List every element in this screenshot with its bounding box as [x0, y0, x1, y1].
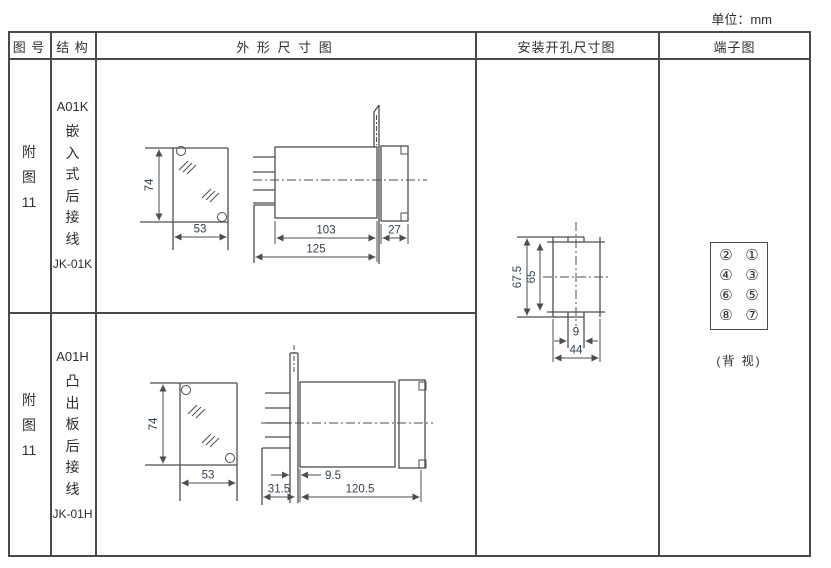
terminal-view-caption: (背 视) — [696, 352, 782, 369]
datasheet-page: { "unit_label": "单位：mm", "headers": { "f… — [0, 0, 831, 568]
terminal-1: ① — [745, 248, 758, 264]
mounting-screw — [182, 386, 191, 395]
model-label: A01K — [57, 99, 89, 114]
dim-total-length-label: 125 — [306, 244, 325, 256]
dim-offset-label: 9.5 — [325, 470, 341, 482]
mounting-cutout-drawing: 67.5 65 9 44 — [475, 58, 658, 557]
terminal-7: ⑦ — [745, 308, 758, 324]
type-code-label: JK-01K — [53, 257, 92, 271]
terminal-diagram-cell: ② ① ④ ③ ⑥ ⑤ ⑧ ⑦ (背 视) — [658, 58, 811, 557]
dim-inner-height-label: 65 — [526, 271, 538, 284]
type-code-label: JK-01H — [52, 507, 92, 521]
dim-width-label: 53 — [194, 224, 207, 236]
relay-body — [275, 147, 377, 218]
dim-width-label: 53 — [202, 470, 215, 482]
hatch-mark — [202, 434, 219, 447]
terminal-2: ② — [719, 248, 732, 264]
structure-cell-row1: A01K 嵌 入 式 后 接 线 JK-01K — [50, 58, 95, 312]
hatch-mark — [202, 189, 219, 202]
dim-height-label: 74 — [144, 178, 156, 191]
terminal-6: ⑥ — [719, 288, 732, 304]
header-outline-dims: 外 形 尺 寸 图 — [95, 37, 475, 56]
terminal-8: ⑧ — [719, 308, 732, 324]
figure-number-cell-row2: 附 图 11 — [8, 312, 50, 558]
dim-outer-height-label: 67.5 — [512, 266, 524, 288]
side-view: 9.5 120.5 31.5 — [261, 345, 433, 505]
mounting-screw — [226, 454, 235, 463]
cutout-outline — [517, 222, 608, 348]
relay-body — [300, 382, 395, 467]
header-structure: 结 构 — [50, 37, 95, 56]
structure-description: 凸 出 板 后 接 线 — [66, 371, 80, 500]
outline-drawing-a01h: 74 53 9.5 120.5 31.5 — [95, 312, 475, 558]
header-figure-no: 图 号 — [8, 37, 50, 56]
dim-notch-width-label: 9 — [573, 327, 579, 339]
mounting-screw — [218, 213, 227, 222]
dim-body-length-label: 103 — [316, 225, 335, 237]
terminal-5: ⑤ — [745, 288, 758, 304]
header-mounting-holes: 安装开孔尺寸图 — [475, 37, 658, 56]
dim-cutout-width-label: 44 — [570, 345, 583, 357]
front-view: 74 53 — [145, 383, 237, 501]
terminal-box: ② ① ④ ③ ⑥ ⑤ ⑧ ⑦ — [710, 242, 768, 330]
cutout-dimensions: 67.5 65 9 44 — [512, 239, 600, 363]
header-terminal-diagram: 端子图 — [658, 37, 811, 56]
dim-rear-depth-label: 31.5 — [268, 484, 290, 496]
structure-description: 嵌 入 式 后 接 线 — [66, 121, 80, 250]
dim-height-label: 74 — [148, 417, 160, 430]
front-bezel — [381, 146, 408, 221]
dim-bezel-label: 27 — [388, 225, 401, 237]
front-view: 74 53 — [140, 147, 228, 251]
structure-cell-row2: A01H 凸 出 板 后 接 线 JK-01H — [50, 312, 95, 558]
hatch-mark — [188, 405, 205, 418]
side-view: 103 27 125 — [253, 105, 427, 264]
front-bezel — [399, 380, 425, 468]
dim-total-length-label: 120.5 — [346, 484, 375, 496]
model-label: A01H — [56, 349, 89, 364]
unit-label: 单位：mm — [711, 9, 772, 28]
outline-drawing-a01k: 74 53 103 27 125 — [95, 58, 475, 312]
figure-number-cell-row1: 附 图 11 — [8, 58, 50, 312]
terminal-4: ④ — [719, 268, 732, 284]
hatch-mark — [179, 161, 196, 174]
terminal-3: ③ — [745, 268, 758, 284]
